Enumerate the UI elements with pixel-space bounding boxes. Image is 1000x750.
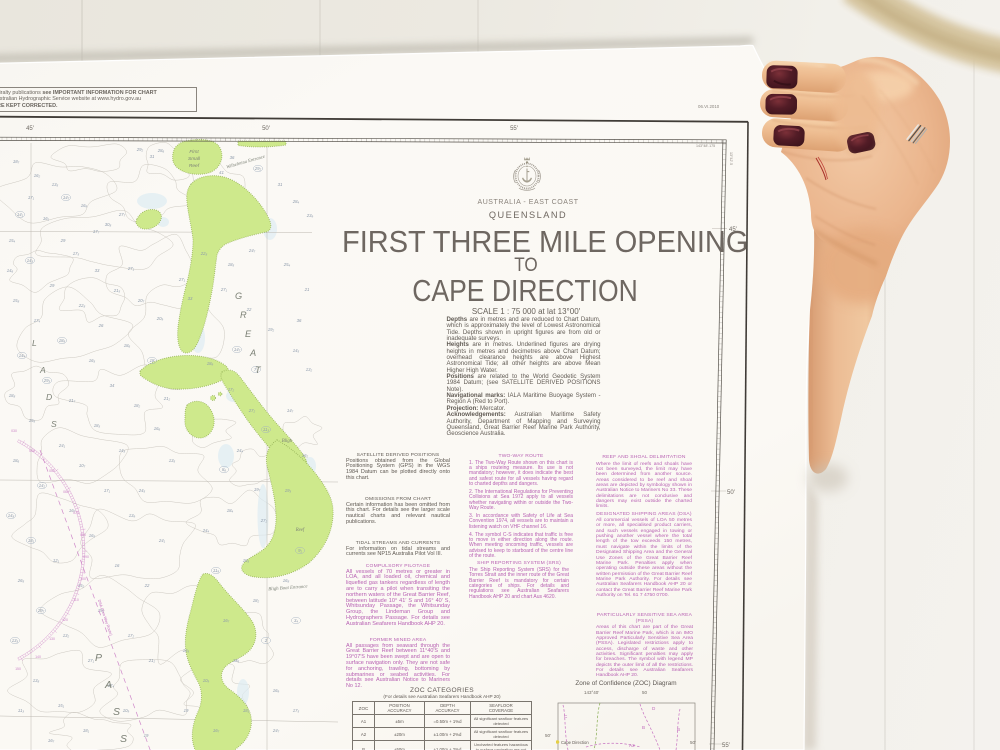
svg-text:G: G — [235, 291, 242, 301]
svg-text:26: 26 — [98, 323, 104, 328]
svg-text:13₃: 13₃ — [12, 638, 19, 643]
svg-text:19₂: 19₂ — [268, 327, 275, 332]
svg-text:14₇: 14₇ — [287, 408, 294, 413]
svg-text:22₈: 22₈ — [200, 251, 208, 256]
svg-text:16: 16 — [115, 563, 120, 568]
svg-text:143°48′.175: 143°48′.175 — [696, 144, 715, 148]
svg-text:16₃: 16₃ — [89, 358, 96, 363]
svg-text:18₂: 18₂ — [134, 403, 141, 408]
svg-text:36: 36 — [297, 318, 302, 323]
svg-text:15₅: 15₅ — [29, 418, 36, 423]
svg-text:24₇: 24₇ — [272, 728, 280, 733]
svg-text:120: 120 — [62, 618, 68, 622]
svg-text:Reef: Reef — [189, 163, 200, 169]
svg-text:18₄: 18₄ — [227, 508, 234, 513]
svg-text:A2: A2 — [629, 743, 635, 748]
svg-text:29₇: 29₇ — [37, 608, 45, 613]
svg-text:50′: 50′ — [262, 126, 271, 132]
svg-text:11₉: 11₉ — [213, 568, 219, 573]
svg-text:080: 080 — [80, 533, 86, 537]
svg-text:20₇: 20₇ — [137, 298, 145, 303]
svg-text:14₆: 14₆ — [7, 268, 14, 273]
svg-text:31: 31 — [278, 182, 283, 187]
svg-text:29: 29 — [60, 238, 66, 243]
svg-text:11₃: 11₃ — [18, 708, 24, 713]
svg-text:17₇: 17₇ — [93, 229, 100, 234]
svg-text:18₅: 18₅ — [228, 262, 235, 267]
svg-text:17₁: 17₁ — [104, 488, 111, 493]
svg-text:S: S — [113, 706, 120, 718]
svg-text:28₆: 28₆ — [157, 148, 165, 153]
svg-text:24₄: 24₄ — [236, 448, 244, 453]
svg-text:L: L — [32, 338, 37, 348]
svg-text:16₅: 16₅ — [89, 533, 96, 538]
svg-text:06.VI.2010: 06.VI.2010 — [698, 104, 720, 109]
svg-text:10₇: 10₇ — [79, 463, 86, 468]
svg-text:Reef: Reef — [295, 528, 305, 533]
svg-text:22₈: 22₈ — [78, 303, 86, 308]
svg-text:23₉: 23₉ — [306, 213, 314, 218]
svg-text:090: 090 — [83, 555, 89, 559]
svg-text:27₁: 27₁ — [220, 287, 228, 292]
svg-text:100: 100 — [80, 577, 86, 581]
svg-text:19₃: 19₃ — [285, 488, 292, 493]
svg-text:11₃: 11₃ — [263, 427, 269, 432]
svg-text:17₅: 17₅ — [293, 708, 300, 713]
svg-text:E: E — [245, 329, 252, 339]
svg-text:14₃: 14₃ — [119, 448, 126, 453]
svg-text:A: A — [39, 365, 46, 375]
svg-text:C: C — [564, 714, 568, 719]
svg-text:18₈: 18₈ — [9, 393, 16, 398]
svg-text:13₂: 13₂ — [63, 633, 70, 638]
svg-text:34: 34 — [110, 383, 115, 388]
svg-text:B: B — [677, 727, 680, 732]
svg-text:16₇: 16₇ — [48, 738, 55, 743]
svg-text:17₄: 17₄ — [34, 318, 41, 323]
svg-text:29₂: 29₂ — [136, 147, 144, 152]
svg-text:Bligh: Bligh — [282, 439, 293, 444]
svg-text:29₃: 29₃ — [43, 378, 51, 383]
svg-text:18₃: 18₃ — [94, 423, 101, 428]
svg-text:Small: Small — [188, 156, 201, 162]
svg-text:18₁: 18₁ — [83, 728, 90, 733]
svg-text:41: 41 — [219, 170, 224, 175]
svg-text:R: R — [240, 310, 247, 320]
svg-text:Cape Direction: Cape Direction — [561, 740, 589, 745]
svg-text:17₅: 17₅ — [73, 251, 80, 256]
svg-text:15₈: 15₈ — [13, 298, 20, 303]
svg-text:22: 22 — [144, 583, 150, 588]
svg-text:18₉: 18₉ — [207, 361, 214, 366]
svg-text:14₇: 14₇ — [234, 347, 241, 352]
svg-text:17₂: 17₂ — [128, 633, 135, 638]
svg-text:B: B — [642, 725, 645, 730]
svg-text:26₅: 26₅ — [17, 578, 25, 583]
svg-text:50′: 50′ — [727, 490, 736, 496]
svg-text:14₅: 14₅ — [293, 348, 300, 353]
svg-text:A: A — [249, 348, 256, 358]
svg-text:150: 150 — [15, 667, 21, 671]
svg-text:24₇: 24₇ — [248, 248, 256, 253]
svg-text:55′: 55′ — [510, 126, 519, 132]
svg-text:29₂: 29₂ — [254, 166, 262, 171]
svg-text:140: 140 — [35, 655, 41, 659]
svg-text:33: 33 — [188, 296, 193, 301]
svg-text:27₁: 27₁ — [87, 658, 95, 663]
svg-text:18₁: 18₁ — [243, 708, 250, 713]
svg-text:16₈: 16₈ — [283, 578, 290, 583]
svg-text:21₂: 21₂ — [163, 396, 171, 401]
svg-text:18₃: 18₃ — [243, 558, 250, 563]
svg-text:S: S — [120, 733, 127, 745]
svg-text:27₂: 27₂ — [260, 518, 268, 523]
svg-text:3₄: 3₄ — [294, 618, 298, 623]
svg-text:P: P — [95, 652, 102, 664]
svg-text:13₅: 13₅ — [169, 458, 176, 463]
svg-text:050: 050 — [49, 469, 55, 473]
svg-text:18₆: 18₆ — [124, 343, 131, 348]
svg-text:29: 29 — [49, 283, 55, 288]
svg-text:24₁: 24₁ — [158, 538, 166, 543]
svg-text:15₁: 15₁ — [58, 703, 65, 708]
svg-text:24₅: 24₅ — [138, 488, 146, 493]
svg-text:9₁: 9₁ — [298, 548, 302, 553]
svg-text:21₇: 21₇ — [68, 398, 76, 403]
svg-text:D: D — [652, 706, 656, 711]
svg-text:070: 070 — [73, 511, 79, 515]
svg-text:130: 130 — [49, 637, 55, 641]
svg-text:13₈: 13₈ — [33, 678, 40, 683]
svg-text:10₉: 10₉ — [123, 708, 130, 713]
svg-text:21₂: 21₂ — [148, 658, 156, 663]
svg-text:S: S — [51, 419, 57, 429]
svg-text:16₆: 16₆ — [154, 426, 161, 431]
svg-text:16₁: 16₁ — [43, 216, 50, 221]
svg-text:16₉: 16₉ — [81, 203, 88, 208]
svg-text:18: 18 — [150, 358, 155, 363]
svg-text:13₉: 13₉ — [129, 513, 136, 518]
svg-text:030: 030 — [11, 429, 17, 433]
svg-text:24₁: 24₁ — [58, 443, 66, 448]
svg-text:110: 110 — [73, 598, 79, 602]
svg-text:14₇: 14₇ — [63, 195, 70, 200]
svg-text:16₂: 16₂ — [302, 453, 309, 458]
svg-text:18₂: 18₂ — [253, 598, 260, 603]
svg-text:36: 36 — [230, 155, 235, 160]
svg-text:27₁: 27₁ — [127, 266, 135, 271]
svg-text:27₂: 27₂ — [248, 408, 256, 413]
svg-text:19₇: 19₇ — [254, 487, 261, 492]
svg-text:55′: 55′ — [722, 743, 731, 749]
svg-text:21₅: 21₅ — [113, 288, 121, 293]
svg-text:16₇: 16₇ — [223, 618, 230, 623]
svg-text:D: D — [46, 392, 52, 402]
svg-text:16₉: 16₉ — [273, 688, 280, 693]
svg-text:8₆: 8₆ — [222, 467, 226, 472]
svg-text:31: 31 — [150, 154, 155, 159]
svg-text:14₂: 14₂ — [39, 483, 46, 488]
svg-text:A: A — [104, 679, 112, 691]
svg-text:10₉: 10₉ — [203, 678, 210, 683]
svg-text:27₁: 27₁ — [178, 277, 186, 282]
svg-text:14₄: 14₄ — [19, 353, 26, 358]
svg-text:12₁: 12₁ — [53, 558, 60, 563]
svg-text:17₁: 17₁ — [28, 195, 35, 200]
svg-text:13₅: 13₅ — [52, 182, 59, 187]
svg-text:14₃: 14₃ — [27, 258, 34, 263]
svg-text:18₆: 18₆ — [13, 458, 20, 463]
svg-text:25₄: 25₄ — [283, 262, 291, 267]
svg-text:19: 19 — [184, 708, 189, 713]
svg-text:28₄: 28₄ — [292, 199, 300, 204]
svg-text:060: 060 — [63, 490, 69, 494]
svg-text:21: 21 — [304, 287, 310, 292]
svg-text:16₇: 16₇ — [213, 728, 220, 733]
svg-text:18₁: 18₁ — [28, 538, 35, 543]
svg-text:15₄: 15₄ — [9, 238, 16, 243]
svg-text:50′: 50′ — [690, 740, 696, 745]
svg-text:30₈: 30₈ — [105, 222, 112, 227]
svg-text:17₂: 17₂ — [228, 387, 235, 392]
svg-text:14₈: 14₈ — [8, 513, 15, 518]
svg-text:33: 33 — [95, 268, 100, 273]
svg-text:18₅: 18₅ — [233, 658, 240, 663]
svg-text:18₇: 18₇ — [13, 159, 20, 164]
svg-text:13°42′.5: 13°42′.5 — [729, 152, 733, 165]
svg-text:First: First — [189, 149, 199, 155]
svg-text:16₂: 16₂ — [34, 173, 41, 178]
svg-text:13₂: 13₂ — [306, 367, 313, 372]
svg-text:20₉: 20₉ — [156, 316, 164, 321]
svg-text:27₇: 27₇ — [118, 212, 126, 217]
svg-text:18₉: 18₉ — [59, 338, 66, 343]
svg-text:14₁: 14₁ — [17, 212, 24, 217]
svg-text:19: 19 — [144, 733, 149, 738]
svg-text:45′: 45′ — [26, 126, 35, 132]
svg-text:15₂: 15₂ — [78, 583, 85, 588]
svg-text:16₃: 16₃ — [183, 648, 190, 653]
svg-text:040: 040 — [29, 449, 35, 453]
svg-text:24₄: 24₄ — [202, 528, 210, 533]
